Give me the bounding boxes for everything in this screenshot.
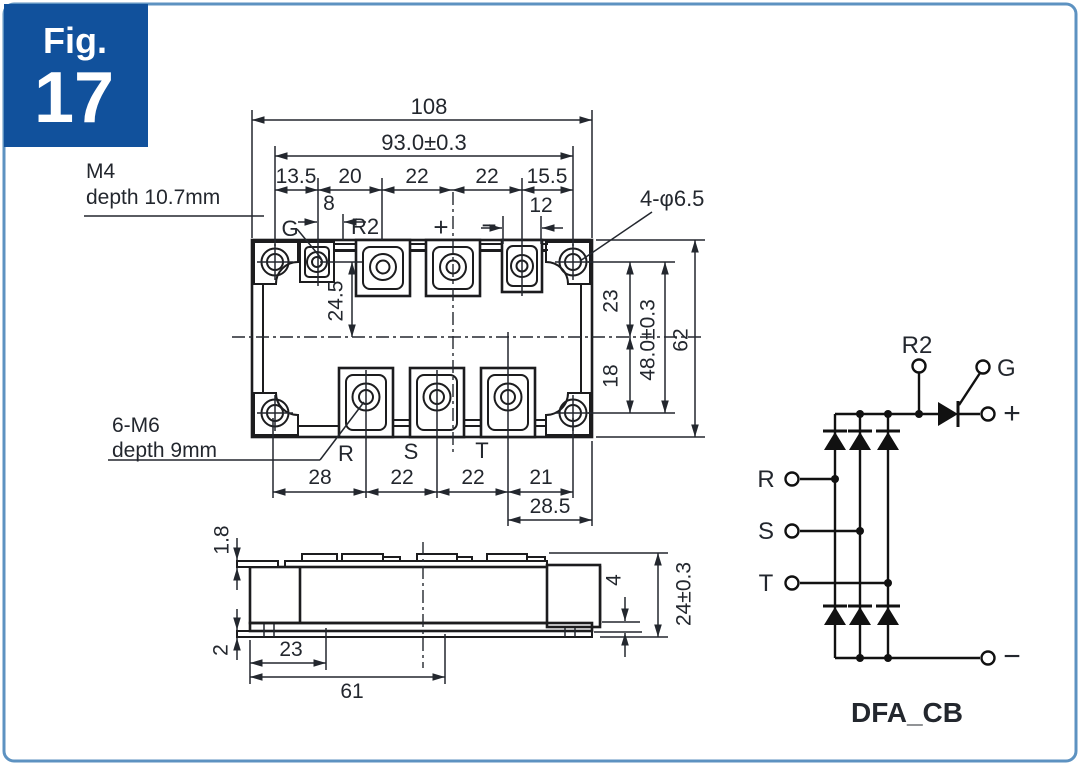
- dim-base-height: 4: [603, 574, 626, 586]
- note-m4-depth: depth 10.7mm: [86, 186, 220, 209]
- label-terminal-plus: +: [433, 212, 448, 242]
- dim-pitch-3: 22: [405, 165, 428, 188]
- circuit-label-plus: +: [1003, 397, 1021, 430]
- note-m4-title: M4: [86, 160, 115, 183]
- dim-hole-span-vertical: 48.0±0.3: [637, 299, 660, 381]
- circuit-label-r2: R2: [902, 332, 933, 359]
- circuit-label-minus: −: [1003, 640, 1021, 673]
- dim-bottom-pitch-4: 21: [529, 466, 552, 489]
- dim-center-offset: 61: [340, 680, 363, 703]
- note-corner-holes: 4-φ6.5: [640, 186, 704, 211]
- circuit-terminal-gate: [977, 361, 990, 374]
- label-terminal-r2: R2: [351, 214, 379, 239]
- circuit-terminal-t: [786, 577, 799, 590]
- dim-bottom-pitch-3: 22: [461, 466, 484, 489]
- dim-side-overall-height: 24±0.3: [673, 562, 696, 626]
- dim-pitch-2: 20: [338, 165, 361, 188]
- label-terminal-s: S: [404, 439, 419, 464]
- note-m6-depth: depth 9mm: [112, 439, 217, 462]
- circuit-terminal-plus: [982, 408, 995, 421]
- circuit-terminal-r: [786, 473, 799, 486]
- figure-badge: Fig. 17: [4, 4, 148, 147]
- label-terminal-t: T: [475, 438, 488, 463]
- circuit-terminal-s: [786, 525, 799, 538]
- circuit-terminal-r2: [913, 360, 926, 373]
- dim-overall-width: 108: [411, 94, 448, 119]
- circuit-label-r: R: [757, 466, 774, 493]
- dim-minus-width: 12: [529, 194, 552, 217]
- note-m6-title: 6-M6: [112, 414, 160, 437]
- terminal-r2: [356, 240, 410, 296]
- label-terminal-gate: G: [281, 216, 298, 241]
- figure-number: 17: [34, 58, 114, 138]
- dim-upper-half: 23: [600, 289, 623, 312]
- dim-bottom-pitch-2: 22: [390, 466, 413, 489]
- dim-gate-offset: 8: [323, 192, 335, 215]
- circuit-title: DFA_CB: [851, 697, 963, 728]
- dim-pitch-1: 13.5: [276, 165, 317, 188]
- dim-bottom-right: 28.5: [530, 495, 571, 518]
- dim-pitch-4: 22: [475, 165, 498, 188]
- dim-lower-half: 18: [600, 364, 623, 387]
- dim-top-to-center: 24.5: [325, 281, 348, 322]
- dim-bottom-pitch-1: 28: [308, 466, 331, 489]
- label-terminal-minus: −: [481, 210, 496, 240]
- label-terminal-r: R: [338, 441, 354, 466]
- drawing-svg: Fig. 17: [0, 0, 1080, 765]
- figure-label: Fig.: [43, 20, 107, 61]
- circuit-label-gate: G: [997, 355, 1016, 382]
- dim-flange-thickness: 1.8: [211, 525, 234, 554]
- circuit-label-t: T: [759, 570, 774, 597]
- dim-base-plate-thickness: 2: [210, 644, 233, 656]
- dim-hole-offset: 23: [279, 638, 302, 661]
- circuit-label-s: S: [758, 518, 774, 545]
- page-border: [4, 4, 1076, 761]
- datasheet-figure: Fig. 17: [0, 0, 1080, 765]
- dim-overall-height: 62: [670, 328, 693, 351]
- circuit-terminal-minus: [982, 652, 995, 665]
- dim-pitch-5: 15.5: [527, 165, 568, 188]
- dim-hole-span: 93.0±0.3: [381, 130, 466, 155]
